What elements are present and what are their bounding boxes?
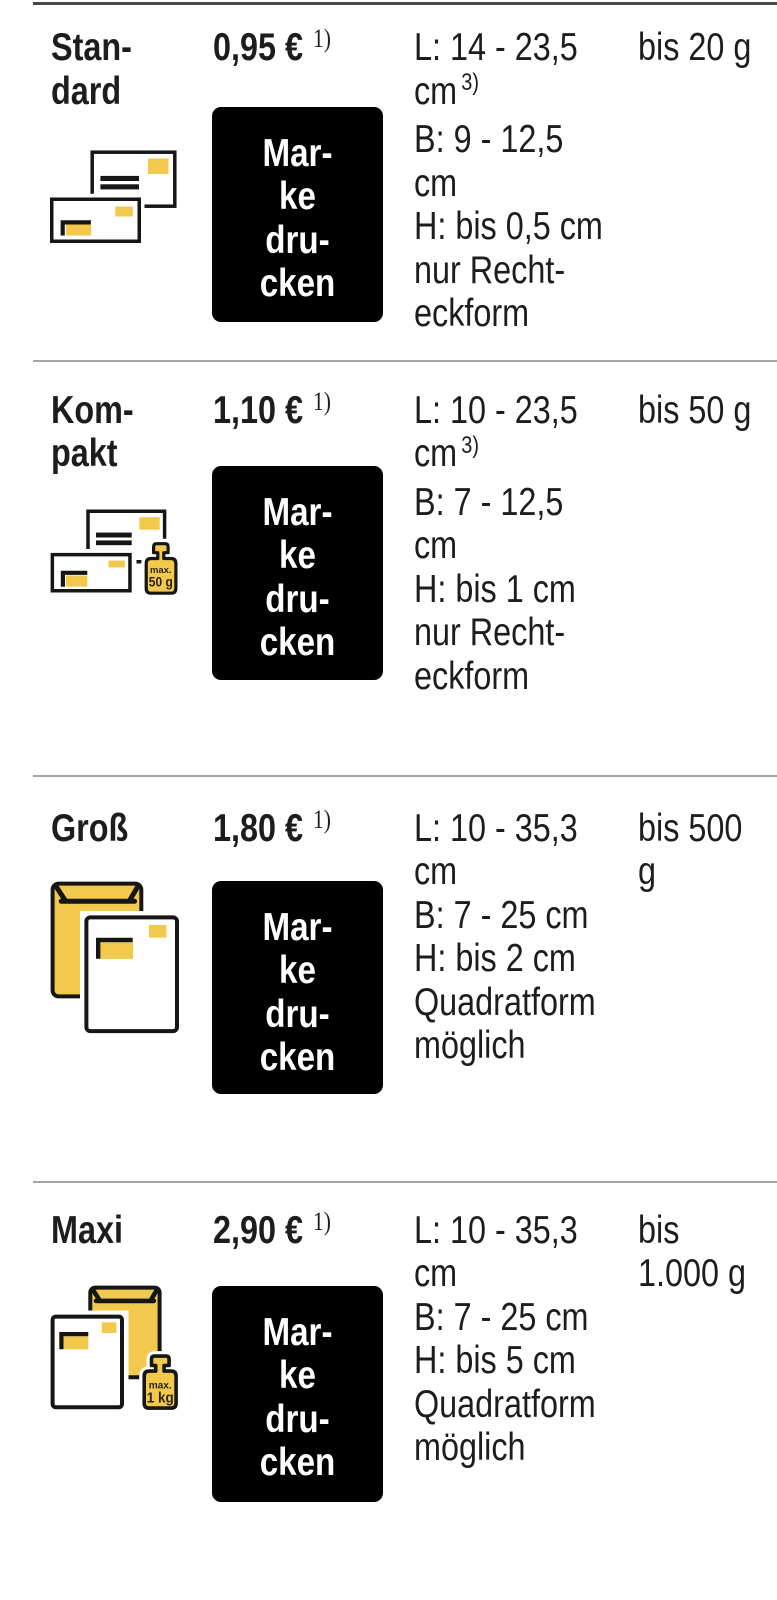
svg-text:50 g: 50 g <box>149 574 173 590</box>
svg-text:1 kg: 1 kg <box>147 1389 174 1406</box>
